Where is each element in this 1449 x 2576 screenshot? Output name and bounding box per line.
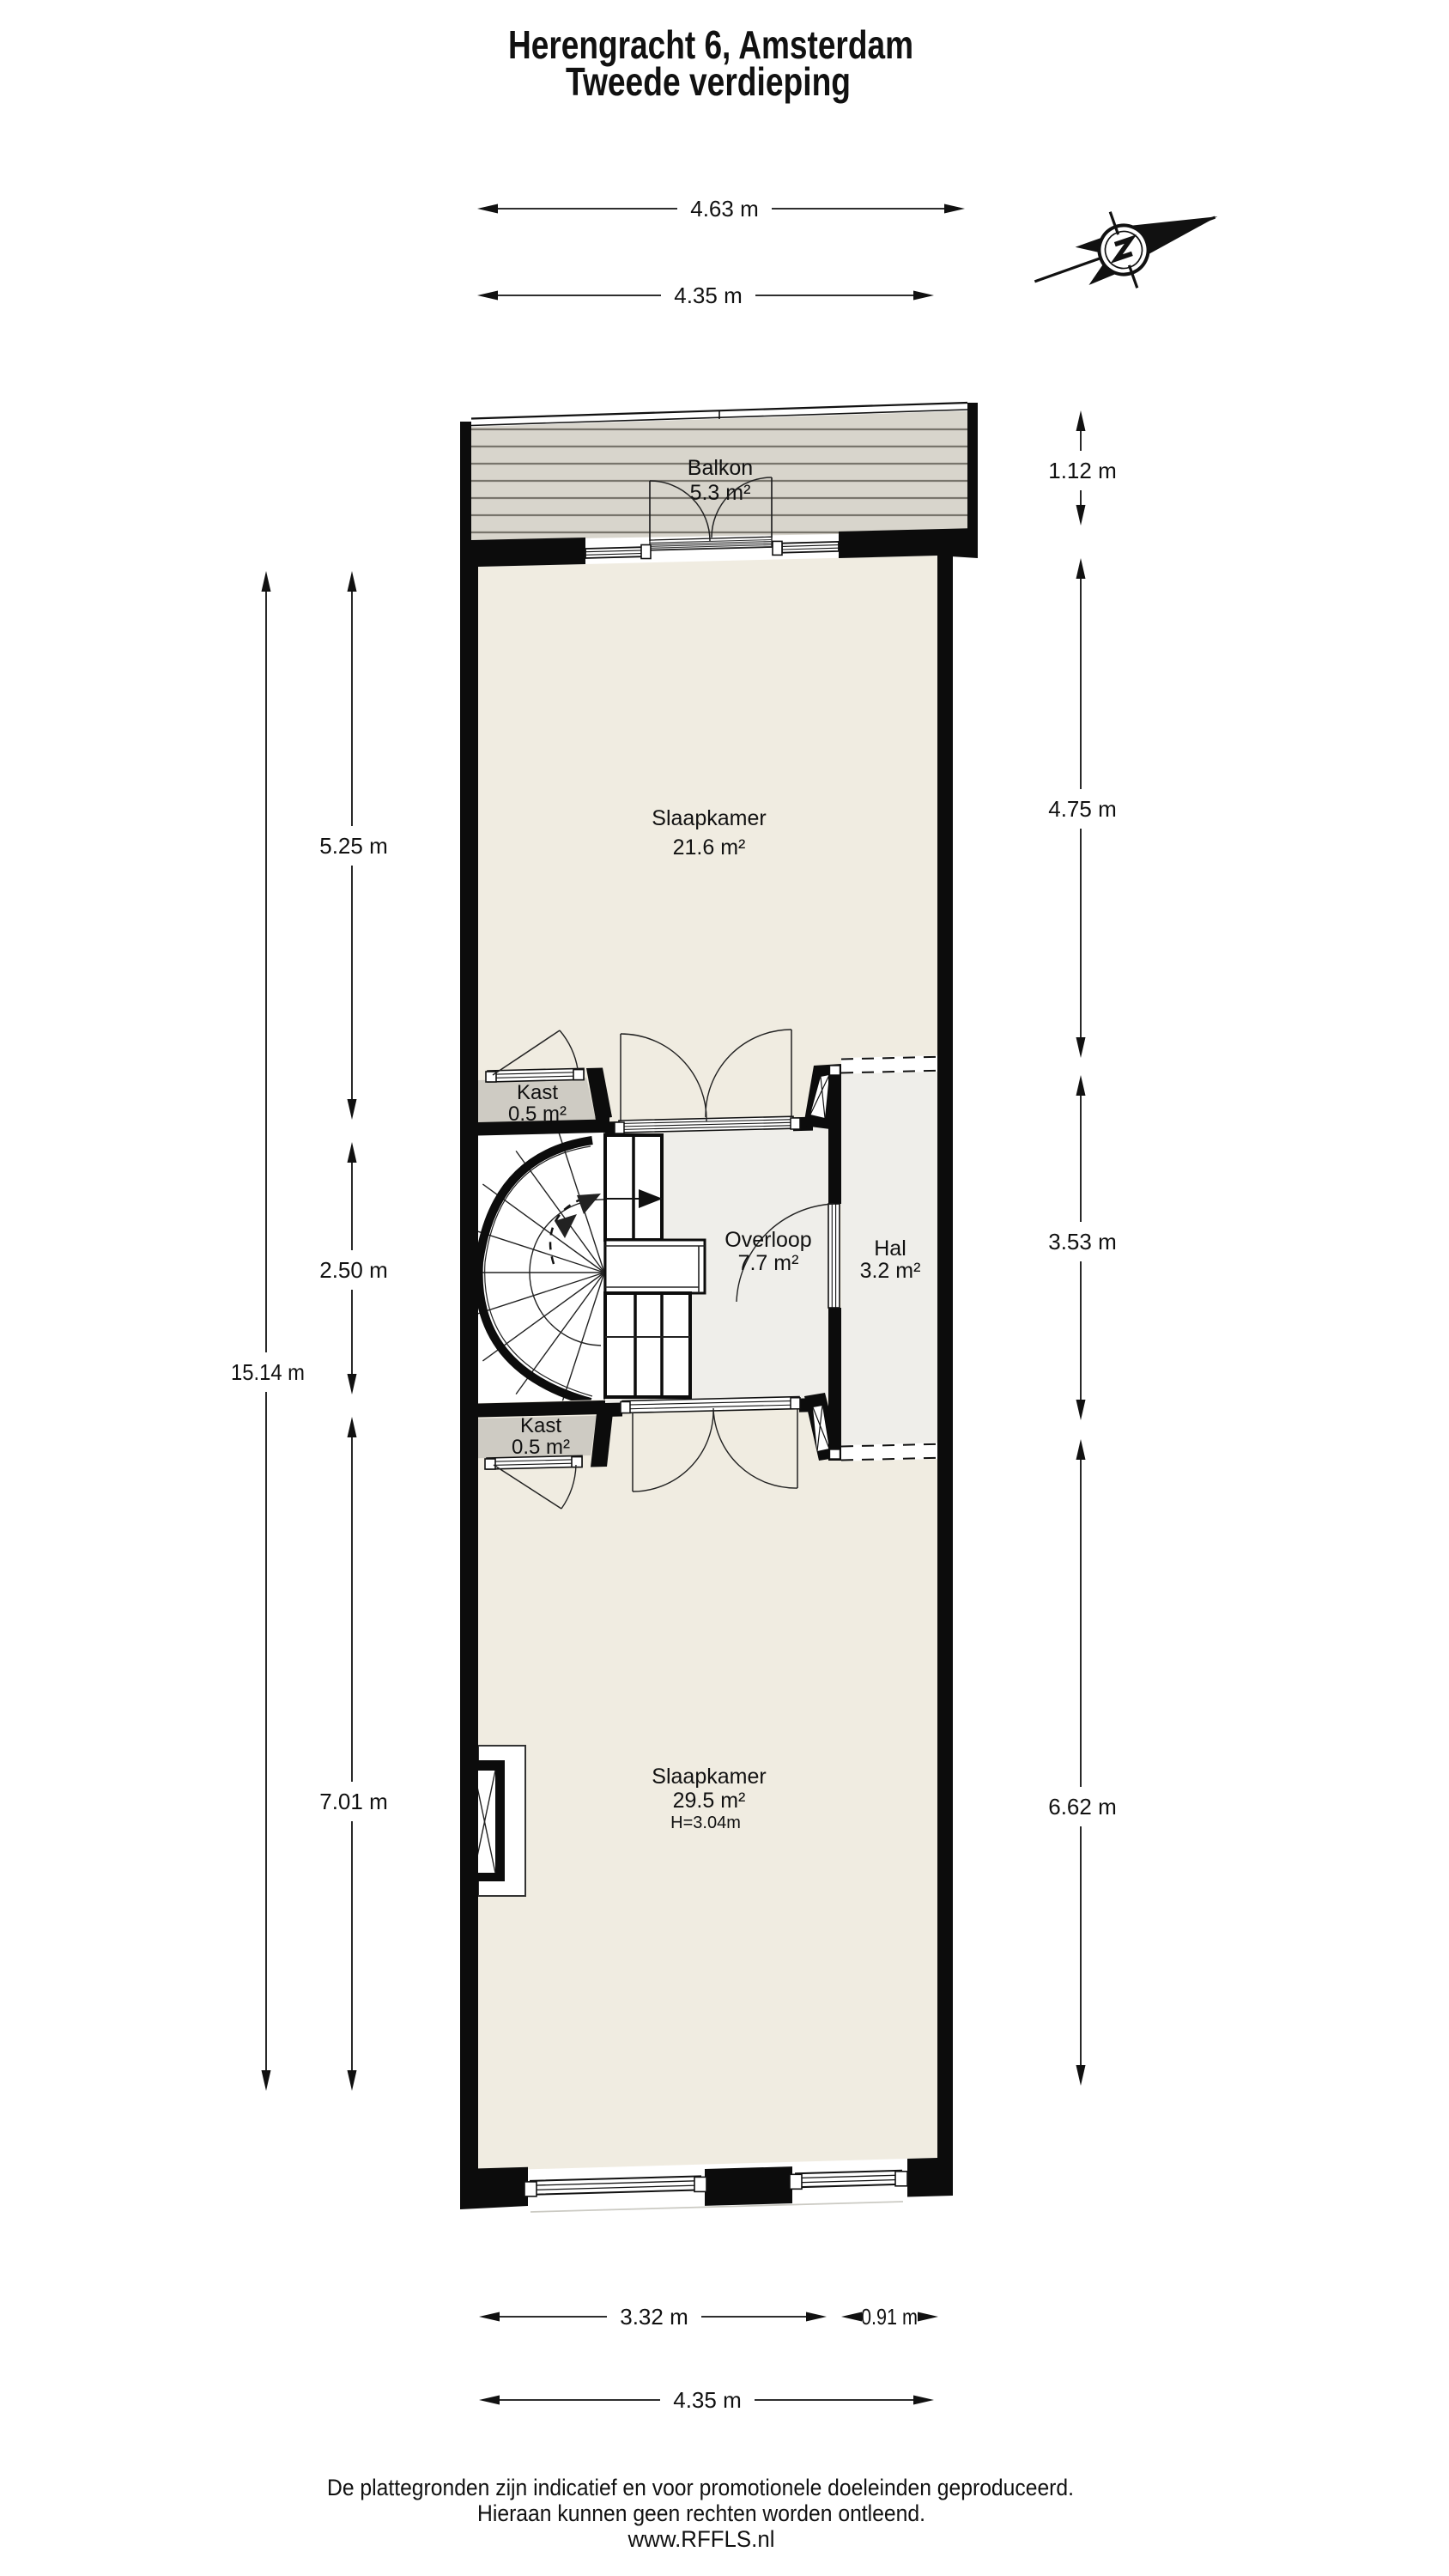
svg-text:7.01 m: 7.01 m	[319, 1789, 388, 1814]
svg-text:29.5 m²: 29.5 m²	[673, 1789, 746, 1813]
svg-text:Slaapkamer: Slaapkamer	[652, 1765, 766, 1789]
svg-text:3.32 m: 3.32 m	[620, 2304, 688, 2330]
svg-text:0.91 m: 0.91 m	[861, 2304, 918, 2330]
svg-text:5.3 m²: 5.3 m²	[690, 481, 751, 505]
svg-text:H=3.04m: H=3.04m	[670, 1814, 741, 1832]
svg-text:4.35 m: 4.35 m	[673, 2387, 742, 2413]
svg-text:Hal: Hal	[874, 1236, 906, 1261]
svg-text:0.5 m²: 0.5 m²	[508, 1103, 567, 1126]
svg-text:Kast: Kast	[520, 1414, 561, 1437]
svg-text:21.6 m²: 21.6 m²	[673, 835, 746, 860]
svg-text:De plattegronden zijn indicati: De plattegronden zijn indicatief en voor…	[327, 2475, 1074, 2500]
svg-text:0.5 m²: 0.5 m²	[512, 1436, 570, 1459]
svg-text:15.14 m: 15.14 m	[231, 1359, 305, 1385]
svg-text:Kast: Kast	[517, 1081, 558, 1104]
svg-text:Tweede verdieping: Tweede verdieping	[566, 59, 851, 104]
svg-text:2.50 m: 2.50 m	[319, 1257, 388, 1283]
svg-text:4.35 m: 4.35 m	[674, 283, 743, 308]
svg-text:4.63 m: 4.63 m	[690, 196, 759, 222]
svg-text:6.62 m: 6.62 m	[1048, 1794, 1117, 1820]
svg-text:7.7 m²: 7.7 m²	[738, 1251, 799, 1275]
svg-text:4.75 m: 4.75 m	[1048, 796, 1117, 822]
svg-text:Balkon: Balkon	[688, 456, 753, 480]
svg-text:Hieraan kunnen geen rechten wo: Hieraan kunnen geen rechten worden ontle…	[477, 2500, 925, 2526]
svg-text:Overloop: Overloop	[724, 1228, 811, 1252]
svg-text:3.53 m: 3.53 m	[1048, 1229, 1117, 1255]
svg-text:Slaapkamer: Slaapkamer	[652, 806, 766, 830]
svg-text:1.12 m: 1.12 m	[1048, 458, 1117, 483]
svg-text:3.2 m²: 3.2 m²	[860, 1259, 921, 1283]
svg-text:www.RFFLS.nl: www.RFFLS.nl	[627, 2526, 775, 2552]
svg-text:5.25 m: 5.25 m	[319, 833, 388, 859]
